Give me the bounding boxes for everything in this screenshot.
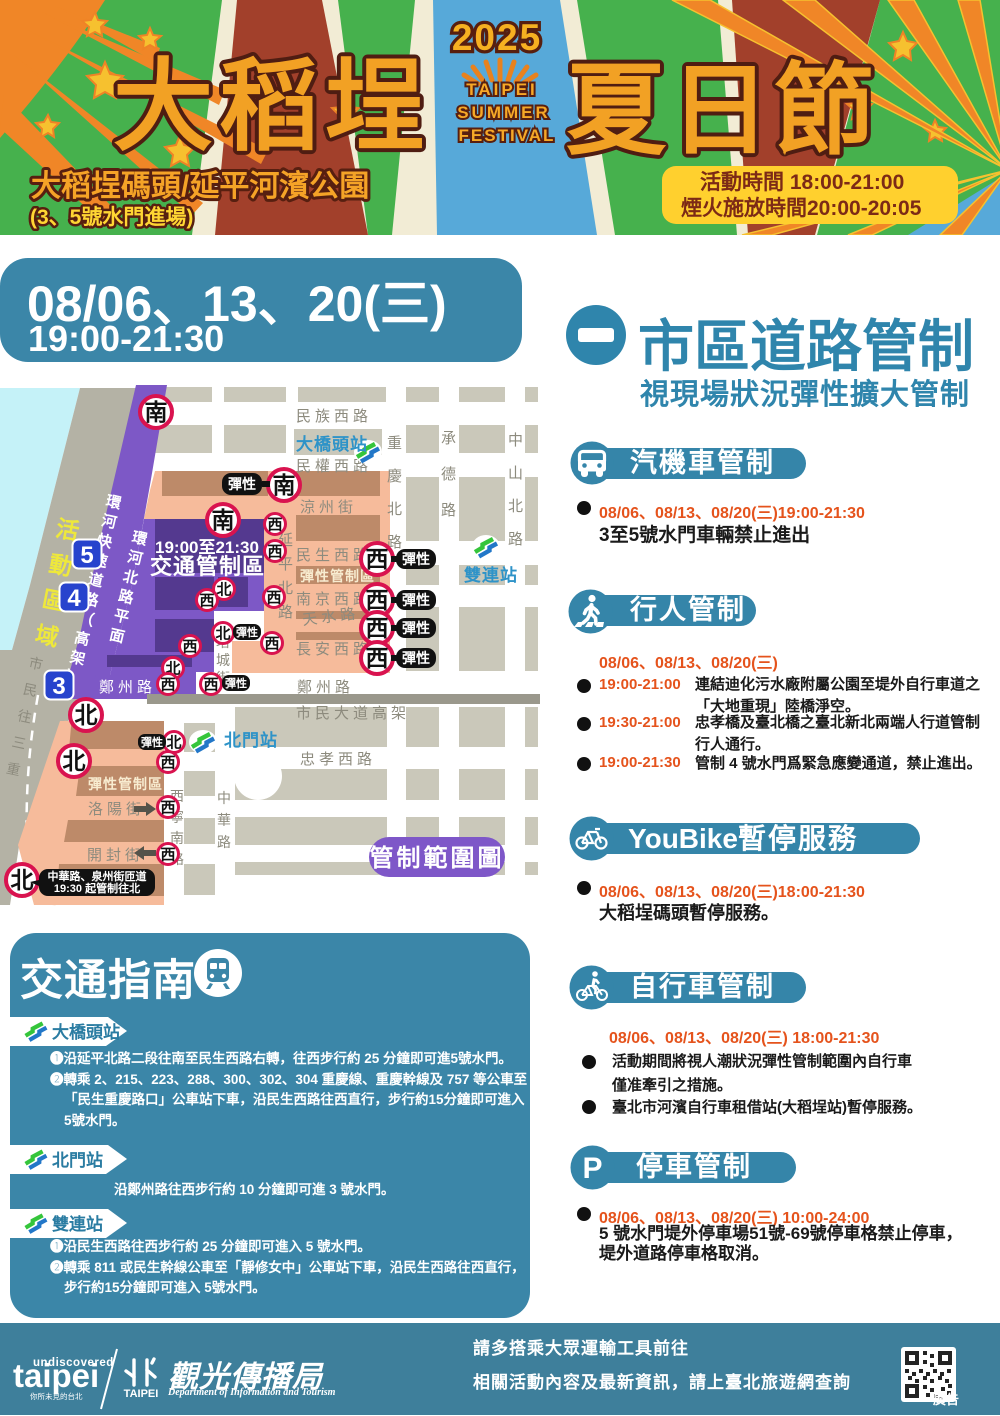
svg-text:北: 北 xyxy=(75,702,98,728)
svg-text:P: P xyxy=(582,1152,602,1185)
svg-text:北門站: 北門站 xyxy=(224,730,278,750)
svg-text:FESTIVAL: FESTIVAL xyxy=(459,126,556,145)
svg-text:(3、5號水門進場): (3、5號水門進場) xyxy=(30,206,193,229)
svg-text:西: 西 xyxy=(199,593,214,610)
svg-text:北: 北 xyxy=(215,626,230,643)
svg-text:大橋頭站: 大橋頭站 xyxy=(296,434,368,454)
svg-text:彈性: 彈性 xyxy=(225,676,247,690)
svg-text:北: 北 xyxy=(166,735,181,752)
svg-text:鄭州路: 鄭州路 xyxy=(297,679,354,696)
svg-text:西: 西 xyxy=(366,615,389,641)
svg-text:西: 西 xyxy=(160,755,175,772)
svg-text:開封街: 開封街 xyxy=(87,847,144,864)
svg-text:交通管制區: 交通管制區 xyxy=(150,554,265,579)
svg-text:彈性管制區: 彈性管制區 xyxy=(88,776,163,792)
svg-text:彈性: 彈性 xyxy=(402,551,430,567)
svg-text:彈性: 彈性 xyxy=(141,735,163,749)
svg-text:西: 西 xyxy=(160,800,175,817)
svg-text:忠孝西路: 忠孝西路 xyxy=(300,751,376,768)
svg-text:雙連站: 雙連站 xyxy=(52,1214,103,1234)
svg-text:西: 西 xyxy=(264,636,279,653)
svg-text:5: 5 xyxy=(80,542,93,569)
svg-text:活動時間 18:00-21:00: 活動時間 18:00-21:00 xyxy=(700,170,904,194)
svg-text:西: 西 xyxy=(160,677,175,694)
svg-text:TAIPEI: TAIPEI xyxy=(466,80,538,99)
svg-text:承德路: 承德路 xyxy=(441,430,460,519)
svg-text:TAIPEI: TAIPEI xyxy=(124,1388,159,1399)
svg-text:市民大道高架: 市民大道高架 xyxy=(296,705,410,722)
svg-text:19:30 起管制往北: 19:30 起管制往北 xyxy=(54,881,140,895)
svg-text:西: 西 xyxy=(266,590,281,607)
svg-text:民族西路: 民族西路 xyxy=(296,408,372,425)
svg-text:西: 西 xyxy=(182,639,197,656)
svg-text:涼州街: 涼州街 xyxy=(300,499,357,516)
svg-text:2025: 2025 xyxy=(452,17,542,58)
svg-text:鄭州路: 鄭州路 xyxy=(99,679,156,696)
svg-text:雙連站: 雙連站 xyxy=(464,565,518,585)
svg-text:彈性: 彈性 xyxy=(402,620,430,636)
svg-text:彈性: 彈性 xyxy=(402,650,430,666)
svg-text:SUMMER: SUMMER xyxy=(457,103,551,122)
svg-text:西: 西 xyxy=(366,546,389,572)
svg-text:南: 南 xyxy=(212,507,235,533)
svg-text:大橋頭站: 大橋頭站 xyxy=(52,1022,120,1042)
svg-text:中華路、泉州街匝道: 中華路、泉州街匝道 xyxy=(48,869,147,883)
svg-text:3: 3 xyxy=(52,673,65,700)
svg-text:彈性: 彈性 xyxy=(236,625,258,639)
svg-text:彈性: 彈性 xyxy=(228,476,256,492)
svg-text:西: 西 xyxy=(366,587,389,613)
svg-text:中華路: 中華路 xyxy=(217,790,235,850)
svg-text:北: 北 xyxy=(11,867,34,893)
svg-text:南: 南 xyxy=(273,472,296,498)
svg-text:北門站: 北門站 xyxy=(52,1150,103,1170)
svg-text:彈性: 彈性 xyxy=(402,592,430,608)
svg-text:西: 西 xyxy=(267,517,282,534)
svg-text:管制範圍圖: 管制範圍圖 xyxy=(370,844,505,872)
svg-text:煙火施放時間20:00-20:05: 煙火施放時間20:00-20:05 xyxy=(681,196,922,220)
svg-text:大稻埕: 大稻埕 xyxy=(113,51,431,163)
svg-text:4: 4 xyxy=(67,585,81,612)
svg-text:夏日節: 夏日節 xyxy=(566,55,878,167)
svg-text:北: 北 xyxy=(63,748,86,774)
svg-text:西: 西 xyxy=(203,677,218,694)
svg-text:南: 南 xyxy=(145,399,168,425)
svg-text:大稻埕碼頭/延平河濱公園: 大稻埕碼頭/延平河濱公園 xyxy=(31,170,369,203)
svg-text:中山北路: 中山北路 xyxy=(508,432,527,548)
svg-text:西: 西 xyxy=(160,847,175,864)
svg-text:西: 西 xyxy=(267,544,282,561)
svg-text:西: 西 xyxy=(366,645,389,671)
svg-text:北: 北 xyxy=(216,582,231,599)
